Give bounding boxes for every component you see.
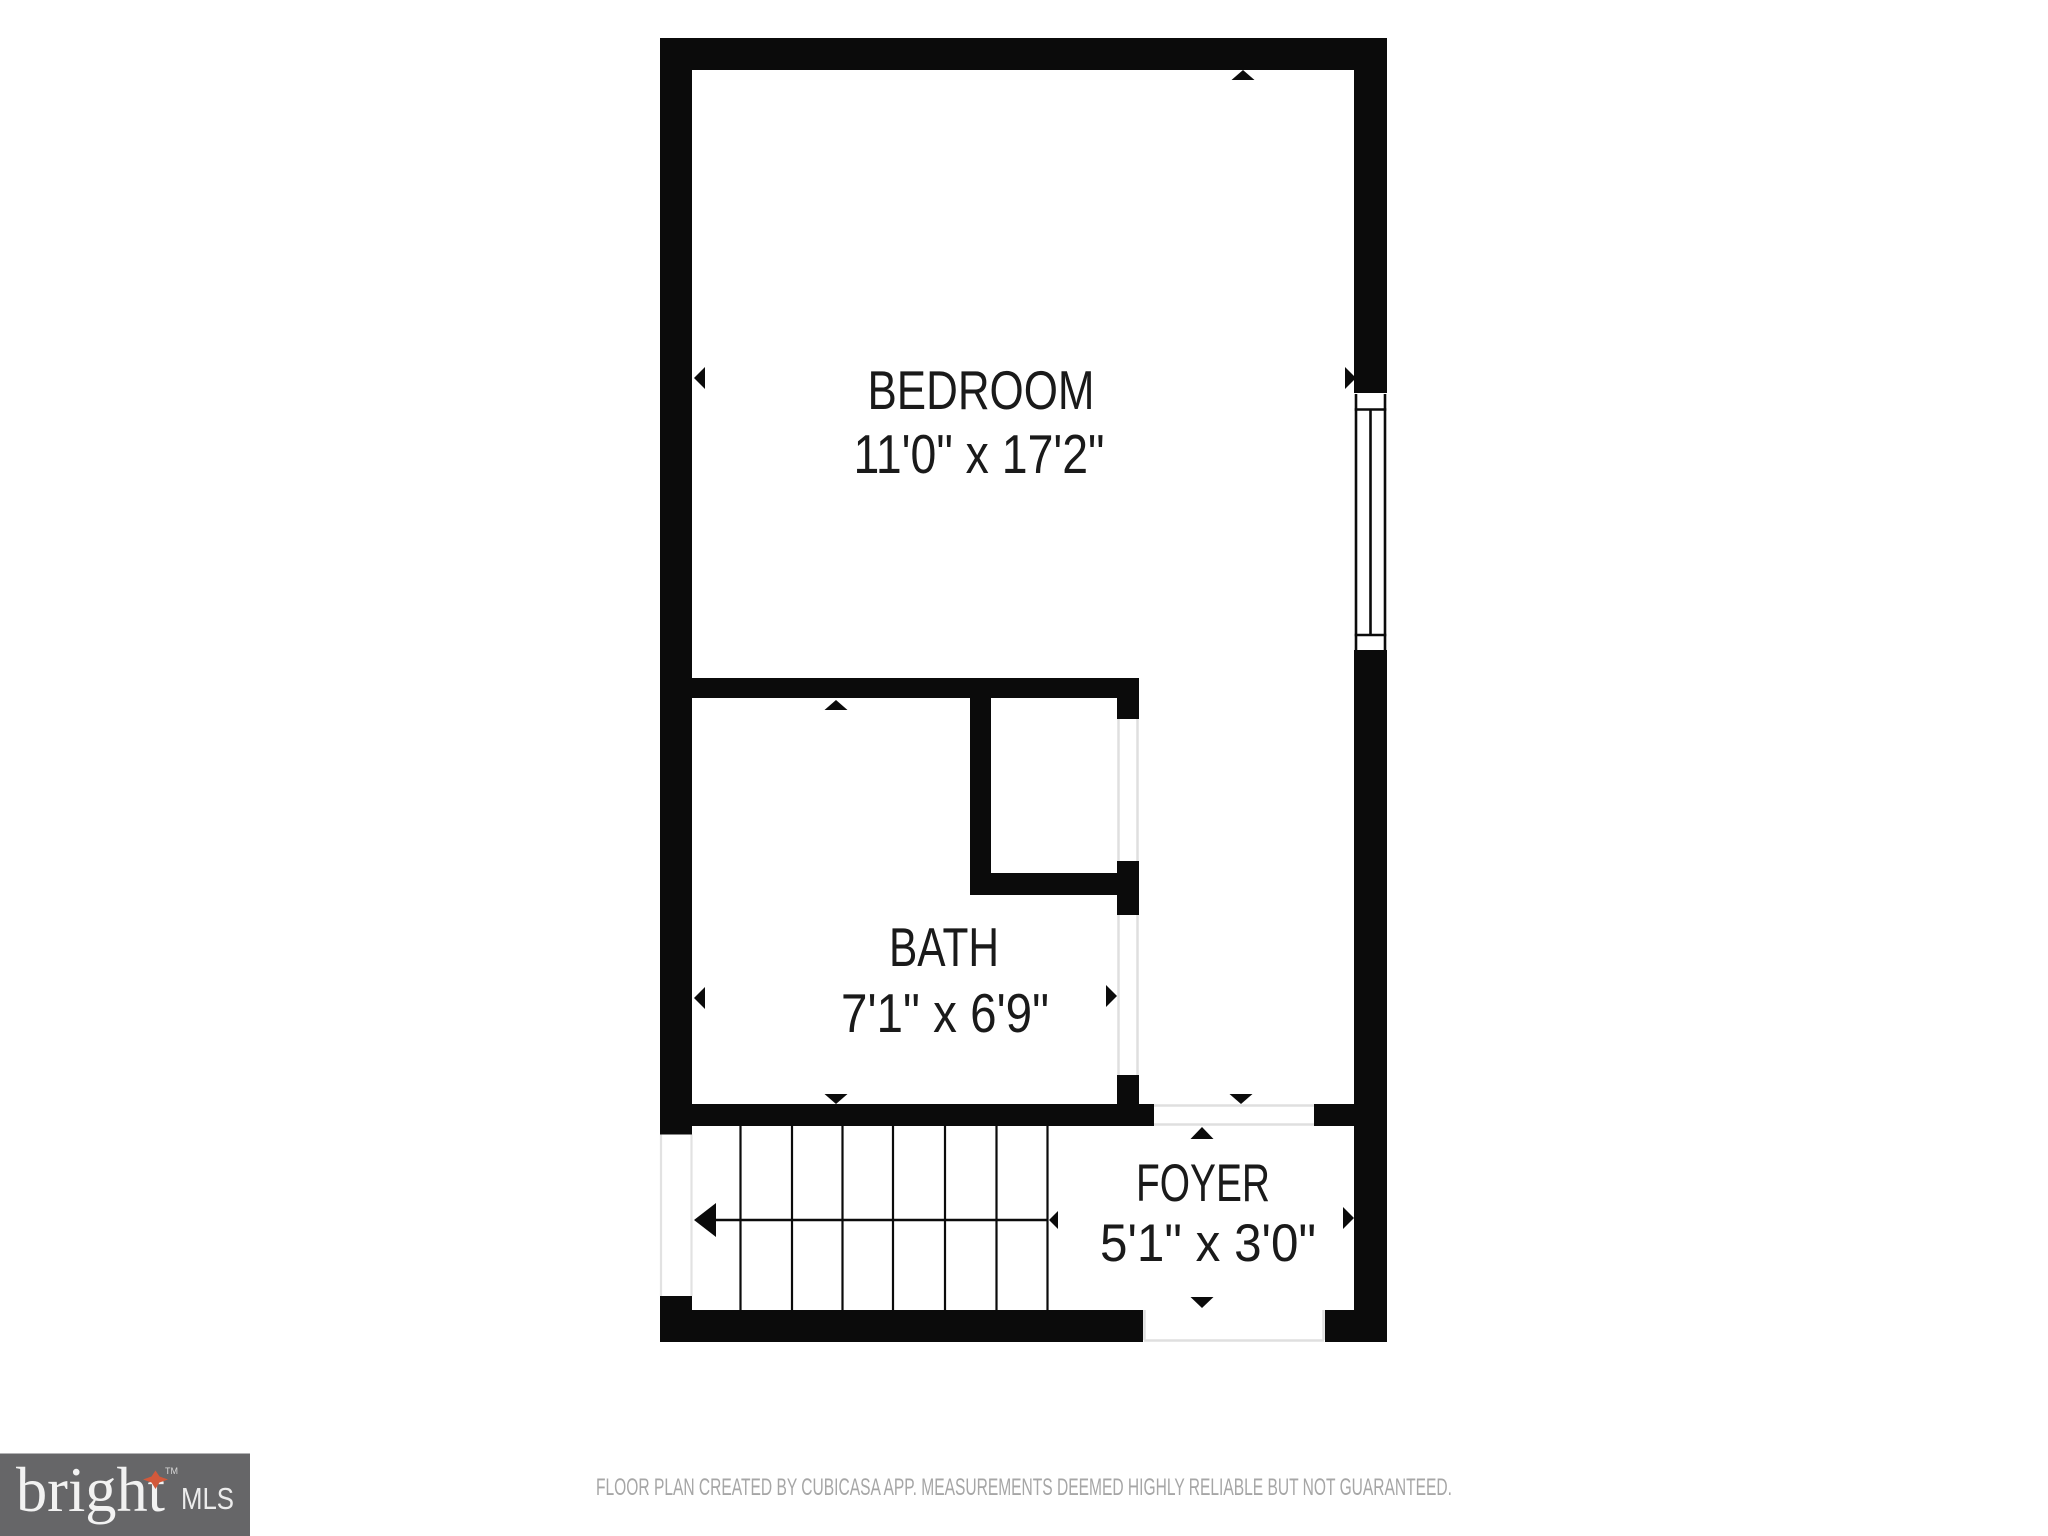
svg-text:5'1" x 3'0": 5'1" x 3'0" xyxy=(1100,1214,1316,1273)
svg-text:BATH: BATH xyxy=(889,916,999,978)
svg-text:BEDROOM: BEDROOM xyxy=(868,359,1095,421)
svg-text:FOYER: FOYER xyxy=(1136,1154,1270,1213)
svg-text:bright: bright xyxy=(16,1455,165,1525)
svg-text:FLOOR PLAN CREATED BY CUBICASA: FLOOR PLAN CREATED BY CUBICASA APP. MEAS… xyxy=(596,1474,1452,1501)
svg-text:11'0" x 17'2": 11'0" x 17'2" xyxy=(854,423,1105,485)
svg-text:TM: TM xyxy=(165,1466,178,1476)
svg-text:7'1" x 6'9": 7'1" x 6'9" xyxy=(841,982,1049,1044)
svg-text:MLS: MLS xyxy=(181,1481,234,1516)
